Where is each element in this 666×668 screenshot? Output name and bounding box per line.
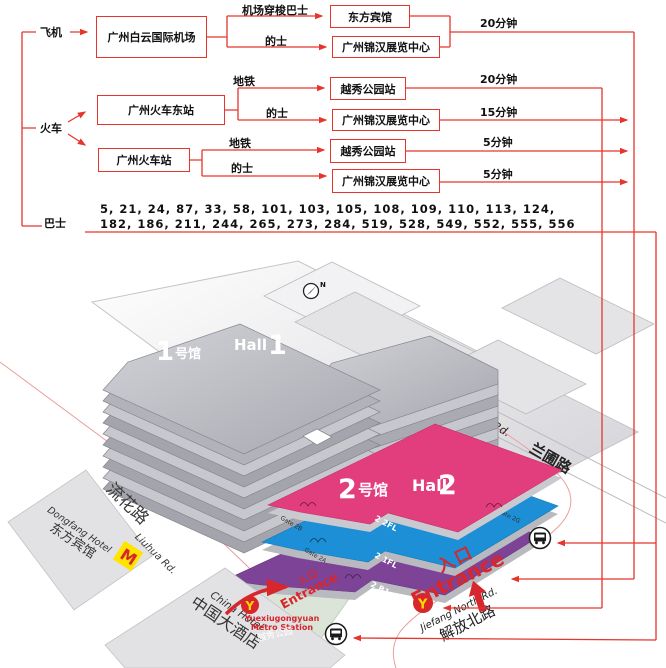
mode-metro-b-label: 地铁 (229, 135, 251, 151)
bus-lines-row1: 5, 21, 24, 87, 33, 58, 101, 103, 105, 10… (100, 202, 536, 216)
duration-15min: 15分钟 (480, 104, 517, 120)
hall2-cn: 号馆 (358, 481, 388, 499)
source-train-label: 火车 (40, 120, 62, 136)
node-yuexiu-park-a: 越秀公园站 (330, 77, 406, 100)
hall1-en: Hall (234, 336, 267, 354)
mode-metro-a-label: 地铁 (233, 73, 255, 89)
node-jinhan-center-a: 广州锦汉展览中心 (332, 36, 440, 58)
mode-taxi-c-label: 的士 (231, 160, 253, 176)
metro-station-en1: Yuexiugongyuan (244, 614, 320, 623)
node-jinhan-center-c: 广州锦汉展览中心 (332, 169, 440, 193)
hall1-cn: 号馆 (175, 346, 201, 362)
mode-taxi-a-label: 的士 (265, 33, 287, 49)
node-dongfang-hotel: 东方宾馆 (330, 5, 410, 28)
node-east-station: 广州火车东站 (97, 95, 225, 125)
bus-stop-icon-crosswalk (326, 624, 347, 645)
duration-20min-a: 20分钟 (480, 15, 517, 31)
hall1-en-number: 1 (268, 330, 287, 361)
hall2-en-number: 2 (438, 470, 457, 501)
metro-logo-y-right: Y (417, 598, 428, 613)
source-plane-label: 飞机 (40, 24, 62, 40)
transport-map-page: Lan Pu Rd. 兰圃路 1 (0, 0, 666, 668)
node-airport: 广州白云国际机场 (96, 16, 207, 58)
source-bus-label: 巴士 (44, 215, 66, 231)
metro-logo-y: Y (245, 599, 255, 613)
node-railway-station: 广州火车站 (98, 148, 190, 172)
duration-20min-b: 20分钟 (480, 71, 517, 87)
bus-stop-icon-road (530, 528, 551, 549)
compass-n-label: N (320, 281, 326, 289)
duration-5min-b: 5分钟 (483, 166, 513, 182)
mode-shuttle-label: 机场穿梭巴士 (242, 2, 308, 18)
node-yuexiu-park-b: 越秀公园站 (330, 139, 406, 163)
mode-taxi-b-label: 的士 (266, 105, 288, 121)
node-jinhan-center-b: 广州锦汉展览中心 (332, 109, 440, 131)
duration-5min-a: 5分钟 (483, 134, 513, 150)
bus-lines-row2: 182, 186, 211, 244, 265, 273, 284, 519, … (100, 217, 536, 231)
hall2-number: 2 (338, 474, 357, 505)
hall1-number: 1 (156, 337, 174, 367)
